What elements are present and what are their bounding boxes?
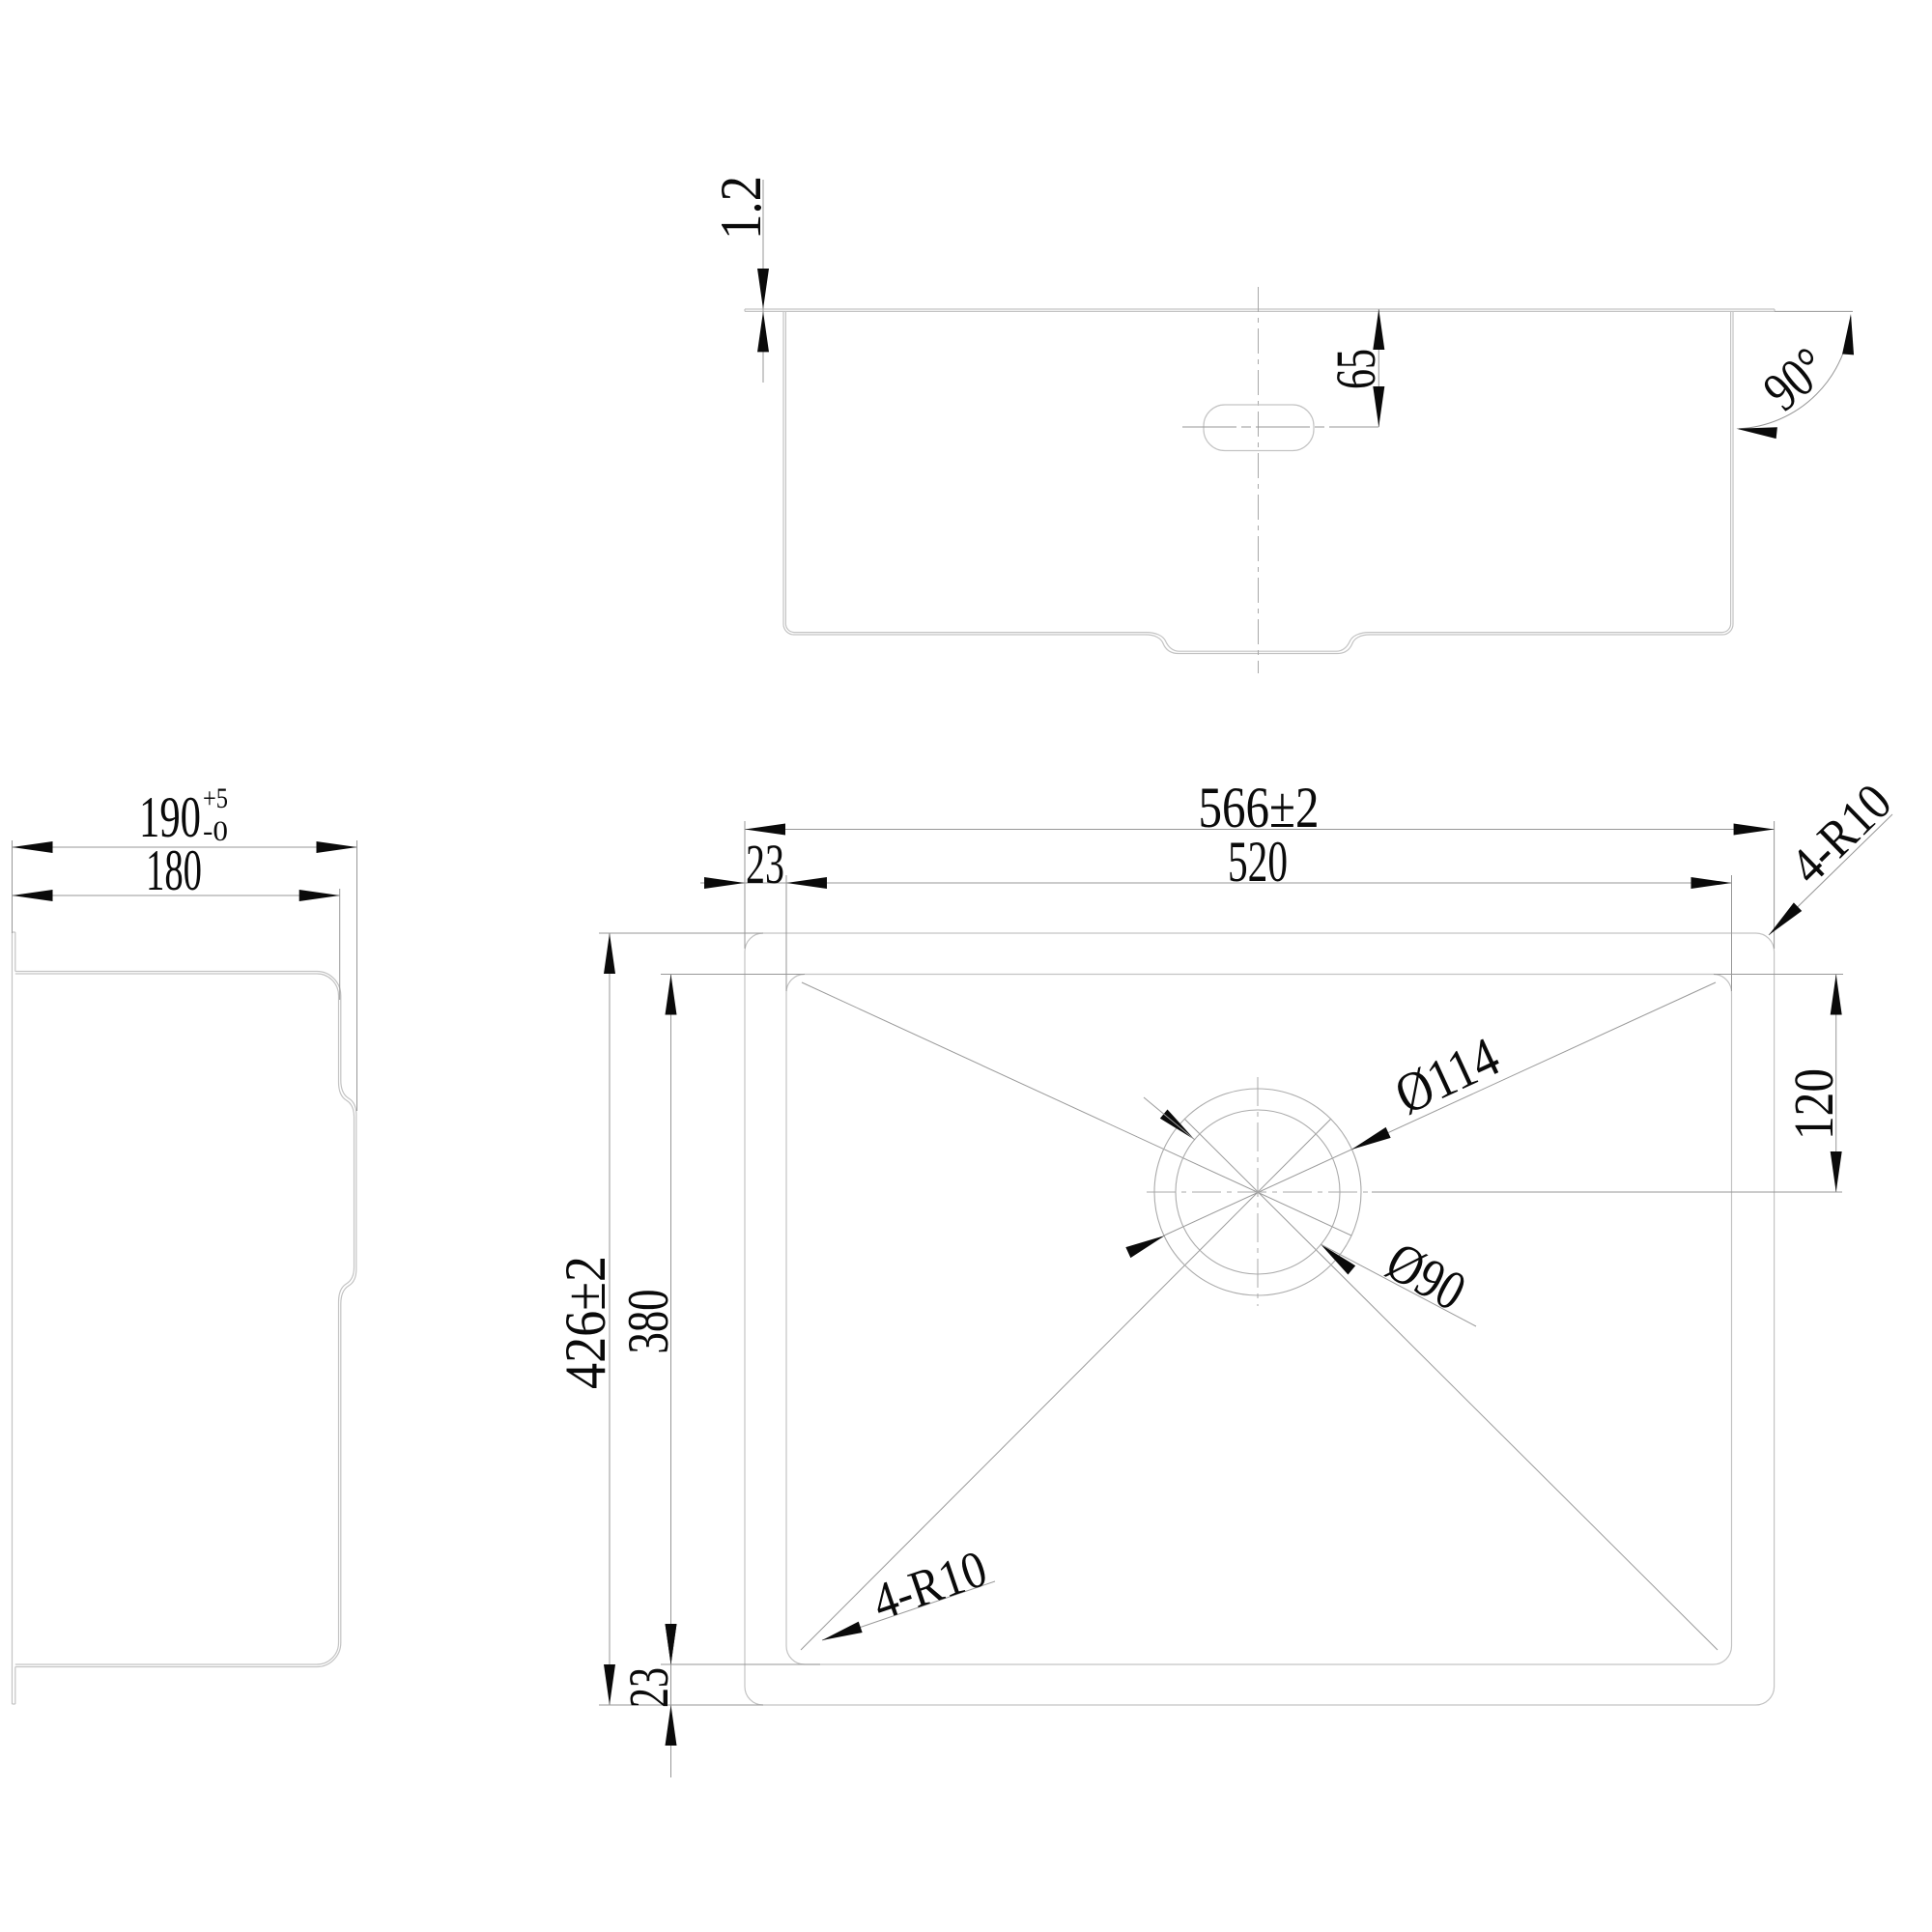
svg-text:1.2: 1.2: [709, 176, 773, 240]
svg-text:520: 520: [1228, 830, 1288, 894]
svg-text:65: 65: [1324, 349, 1387, 389]
svg-text:+5: +5: [203, 782, 228, 814]
svg-text:380: 380: [616, 1290, 680, 1354]
svg-text:-0: -0: [203, 815, 228, 847]
svg-text:23: 23: [746, 833, 784, 895]
svg-text:23: 23: [617, 1667, 680, 1708]
svg-text:180: 180: [146, 838, 202, 902]
svg-text:426±2: 426±2: [554, 1256, 617, 1389]
svg-text:120: 120: [1782, 1068, 1845, 1140]
